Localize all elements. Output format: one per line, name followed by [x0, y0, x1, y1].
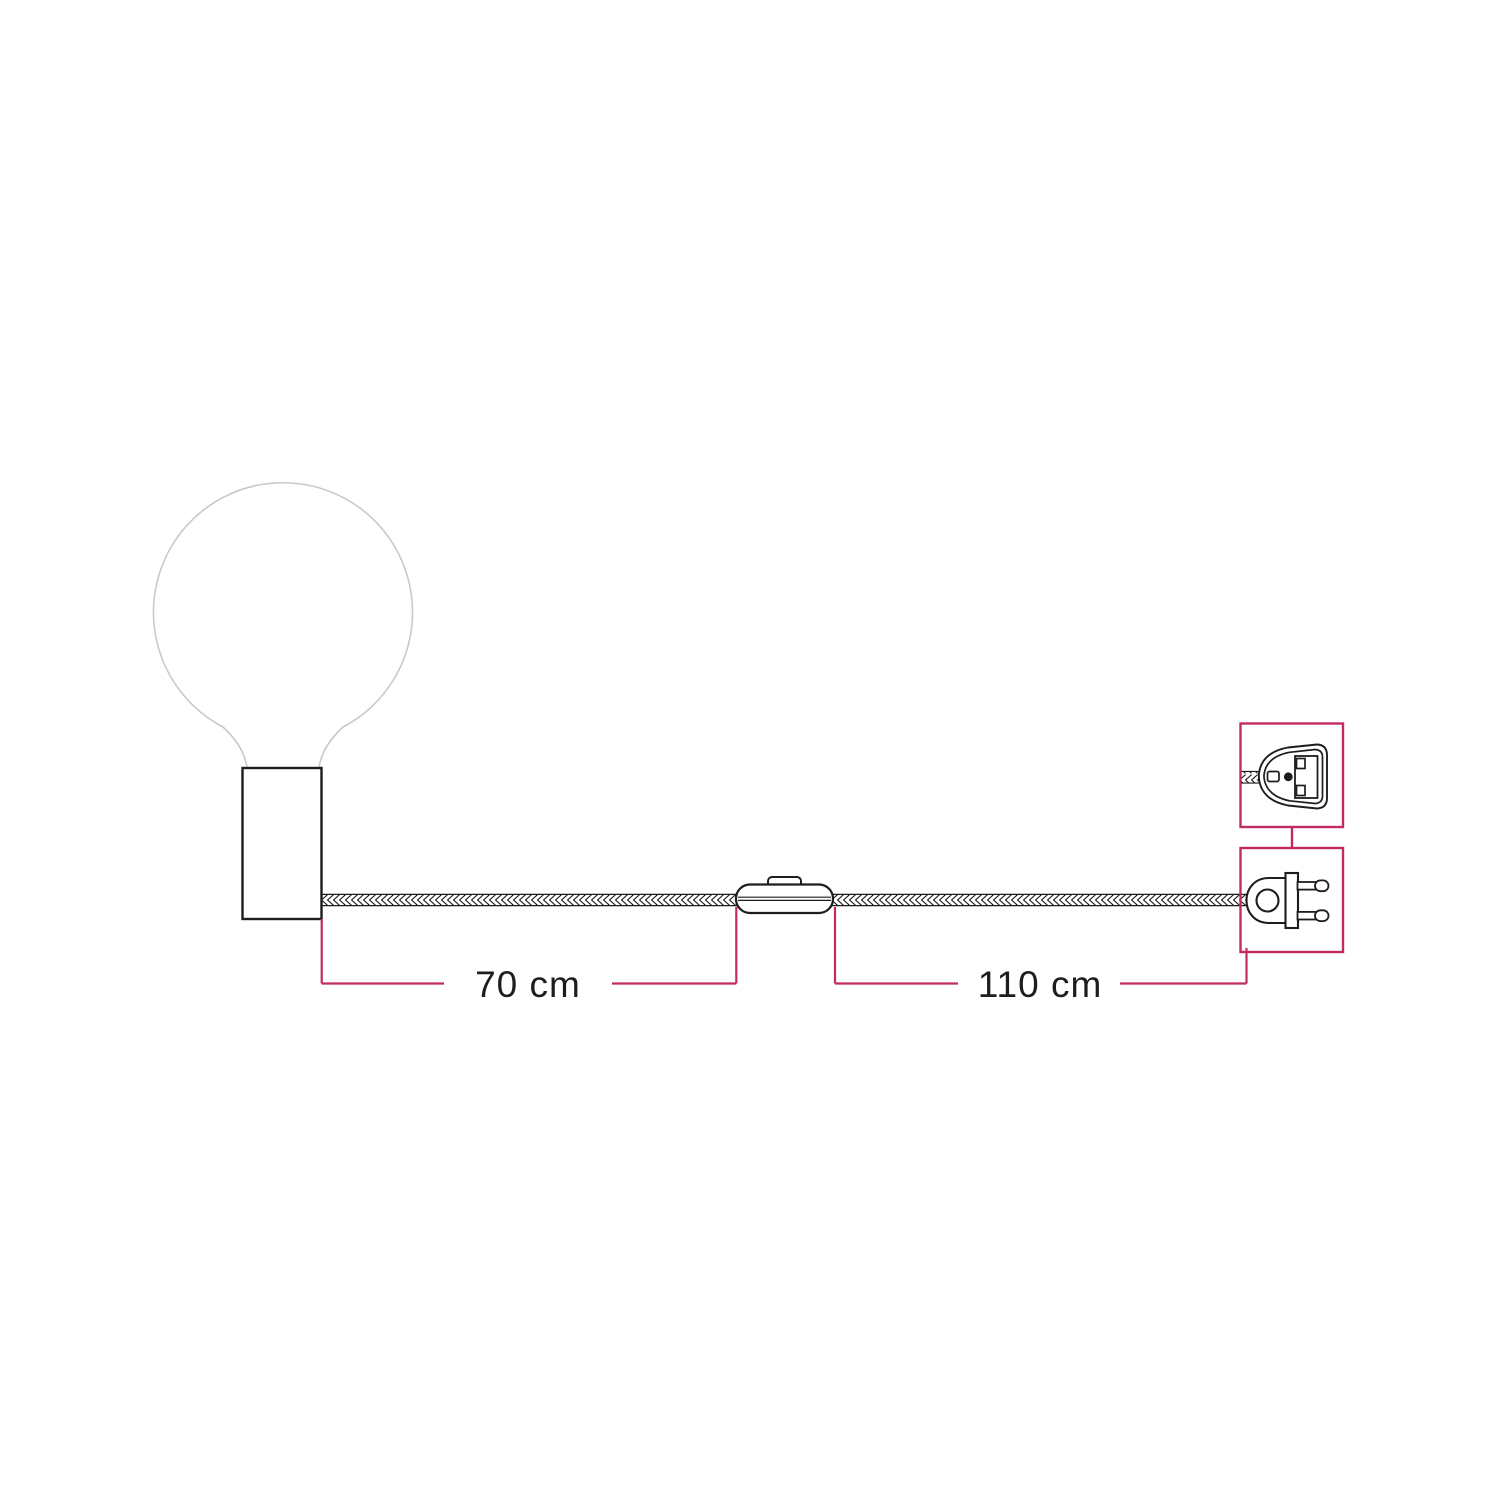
adapter-center-dot — [1284, 772, 1293, 781]
plug-pin-bottom-tip — [1315, 910, 1329, 921]
adapter-cable-stub — [1240, 771, 1261, 784]
stub-braid — [1240, 771, 1261, 784]
plug-body-ring — [1257, 890, 1279, 912]
lamp-holder — [243, 768, 322, 919]
europlug-icon — [1247, 873, 1329, 928]
plug-plate — [1286, 873, 1299, 928]
plug-pin-top-tip — [1315, 880, 1329, 891]
dimension-holder-to-switch: 70 cm — [322, 907, 737, 1005]
dimension-label-70cm: 70 cm — [475, 964, 581, 1005]
inline-switch — [736, 877, 833, 913]
plug-pin-bottom-shaft — [1298, 912, 1317, 920]
dimension-switch-to-plug: 110 cm — [835, 907, 1247, 1005]
lamp-dimension-diagram: 70 cm 110 cm — [0, 0, 1500, 1500]
adapter-pin-slot-top — [1297, 759, 1306, 769]
adapter-neutral-slot — [1268, 772, 1280, 782]
diagram-canvas: 70 cm 110 cm — [0, 0, 1500, 1500]
uk-plug-adapter-icon — [1259, 745, 1327, 809]
plug-pin-top-shaft — [1298, 882, 1317, 890]
dimension-label-110cm: 110 cm — [978, 964, 1103, 1005]
globe-bulb-icon — [153, 483, 412, 768]
adapter-pin-slot-bottom — [1297, 786, 1306, 796]
switch-body — [736, 885, 833, 914]
